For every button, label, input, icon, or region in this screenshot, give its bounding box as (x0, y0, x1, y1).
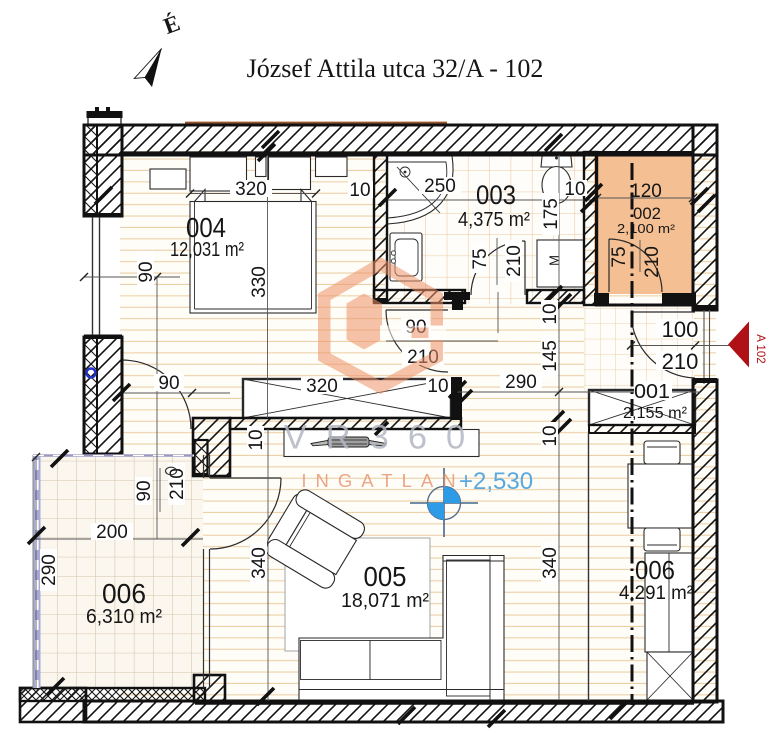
svg-text:INGATLAN: INGATLAN (301, 470, 464, 491)
svg-text:90: 90 (158, 373, 179, 394)
svg-text:320: 320 (306, 376, 338, 397)
svg-text:210: 210 (167, 468, 188, 500)
svg-text:290: 290 (505, 372, 537, 393)
svg-text:210: 210 (662, 349, 699, 374)
svg-text:175: 175 (541, 198, 562, 230)
svg-text:12,031 m²: 12,031 m² (170, 239, 244, 261)
svg-text:330: 330 (249, 266, 270, 298)
svg-text:210: 210 (642, 246, 663, 278)
svg-text:250: 250 (424, 176, 456, 197)
svg-text:005: 005 (364, 561, 407, 592)
svg-text:18,071 m²: 18,071 m² (341, 590, 429, 612)
svg-text:VR360: VR360 (284, 419, 485, 457)
svg-text:006: 006 (635, 555, 675, 585)
svg-text:002: 002 (633, 204, 661, 223)
svg-text:10: 10 (427, 376, 448, 397)
svg-text:320: 320 (235, 179, 267, 200)
svg-text:200: 200 (96, 522, 128, 543)
svg-text:006: 006 (102, 578, 146, 609)
svg-text:75: 75 (470, 248, 491, 269)
svg-text:10: 10 (564, 179, 585, 200)
svg-text:József Attila utca 32/A - 102: József Attila utca 32/A - 102 (247, 54, 544, 83)
svg-text:90: 90 (136, 261, 157, 282)
svg-text:100: 100 (662, 317, 699, 342)
svg-text:75: 75 (609, 246, 630, 267)
svg-text:4,375 m²: 4,375 m² (458, 209, 530, 231)
svg-text:90: 90 (134, 480, 155, 501)
svg-text:2,100 m²: 2,100 m² (617, 222, 675, 236)
svg-text:A 102: A 102 (754, 334, 766, 363)
svg-text:4,291 m²: 4,291 m² (619, 583, 693, 604)
svg-text:10: 10 (540, 303, 561, 324)
svg-text:003: 003 (476, 180, 516, 210)
svg-text:340: 340 (540, 547, 561, 579)
svg-text:2,155 m²: 2,155 m² (623, 405, 688, 422)
svg-text:6,310 m²: 6,310 m² (86, 606, 162, 628)
svg-text:145: 145 (540, 340, 561, 372)
svg-text:001: 001 (634, 381, 670, 403)
svg-text:10: 10 (349, 180, 370, 201)
svg-text:340: 340 (249, 547, 270, 579)
svg-text:290: 290 (39, 554, 60, 586)
svg-text:10: 10 (540, 425, 561, 446)
svg-text:120: 120 (630, 181, 662, 202)
svg-text:10: 10 (246, 429, 267, 450)
svg-text:210: 210 (504, 245, 525, 277)
svg-text:+2,530: +2,530 (459, 468, 533, 495)
